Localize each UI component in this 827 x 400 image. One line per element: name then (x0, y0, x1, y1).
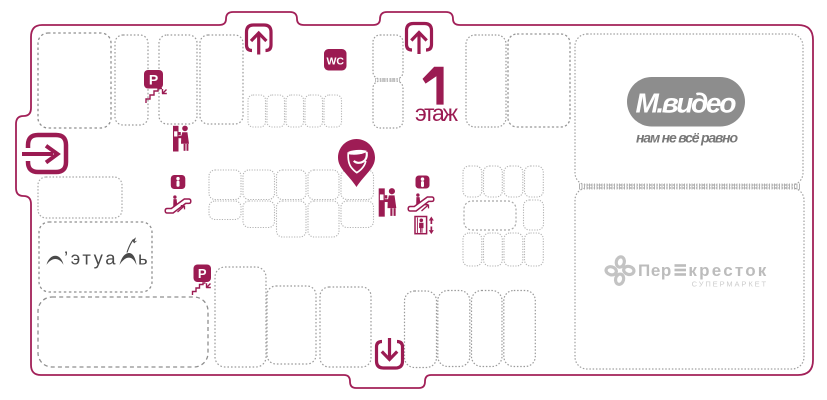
svg-text:WC: WC (326, 56, 344, 68)
svg-text:М.видео: М.видео (636, 88, 737, 119)
svg-text:кресток: кресток (688, 261, 768, 280)
svg-text:этаж: этаж (415, 100, 459, 126)
svg-text:ь: ь (138, 248, 148, 269)
svg-text:нам не всё равно: нам не всё равно (636, 130, 738, 146)
svg-text:’этуа: ’этуа (64, 248, 118, 269)
svg-text:P: P (198, 266, 207, 281)
svg-text:P: P (149, 72, 158, 88)
svg-text:СУПЕРМАРКЕТ: СУПЕРМАРКЕТ (692, 280, 768, 289)
svg-text:Пер: Пер (638, 261, 673, 280)
